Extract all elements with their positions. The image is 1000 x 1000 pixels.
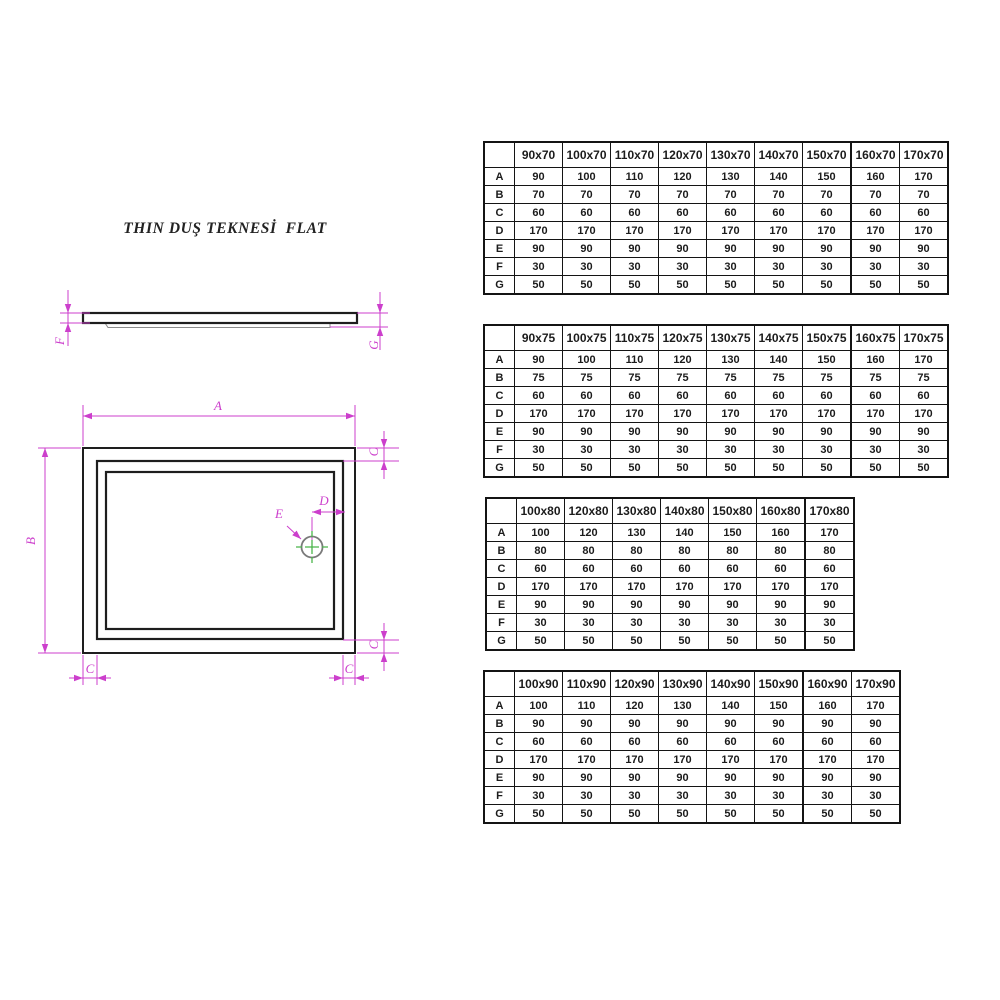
dimension-value: 140 [707, 697, 755, 715]
dimension-value: 90 [659, 423, 707, 441]
dimension-value: 170 [803, 751, 852, 769]
header-row: 100x80120x80130x80140x80150x80160x80170x… [486, 498, 854, 524]
table-row: D170170170170170170170 [486, 578, 854, 596]
dimension-value: 50 [517, 632, 565, 651]
table-row: G5050505050505050 [484, 805, 900, 824]
dimension-value: 90 [611, 769, 659, 787]
dimension-value: 170 [611, 405, 659, 423]
dimension-value: 30 [707, 787, 755, 805]
dimension-value: 170 [852, 751, 901, 769]
dimension-value: 60 [755, 733, 804, 751]
dimension-value: 75 [851, 369, 900, 387]
row-label: G [484, 805, 515, 824]
column-header: 160x90 [803, 671, 852, 697]
dimension-table: 100x80120x80130x80140x80150x80160x80170x… [485, 497, 855, 651]
table-row: B9090909090909090 [484, 715, 900, 733]
dimension-value: 90 [659, 240, 707, 258]
dimension-value: 90 [755, 423, 803, 441]
dimension-value: 170 [755, 751, 804, 769]
dimension-value: 90 [515, 769, 563, 787]
dimension-value: 90 [852, 769, 901, 787]
dimension-value: 30 [659, 258, 707, 276]
dim-label-c-bottom-left: C [82, 662, 98, 676]
column-header: 100x75 [563, 325, 611, 351]
dimension-value: 30 [611, 787, 659, 805]
dimension-value: 30 [803, 787, 852, 805]
column-header: 170x90 [852, 671, 901, 697]
column-header: 120x70 [659, 142, 707, 168]
dimension-value: 30 [709, 614, 757, 632]
dim-label-a: A [210, 399, 226, 413]
dimension-value: 50 [611, 805, 659, 824]
column-header: 120x80 [565, 498, 613, 524]
dimension-value: 90 [515, 715, 563, 733]
dimension-value: 60 [563, 733, 611, 751]
row-label: E [484, 769, 515, 787]
dimension-value: 150 [755, 697, 804, 715]
dimension-value: 60 [611, 387, 659, 405]
column-header: 100x90 [515, 671, 563, 697]
table-row: B707070707070707070 [484, 186, 948, 204]
shower-tray-spec-sheet: THIN DUŞ TEKNESİ FLAT [0, 0, 1000, 1000]
row-label: C [484, 204, 515, 222]
dimension-value: 50 [611, 276, 659, 295]
dimension-value: 75 [755, 369, 803, 387]
table-row: G505050505050505050 [484, 459, 948, 478]
dimension-value: 30 [659, 787, 707, 805]
dimension-value: 80 [709, 542, 757, 560]
dimension-value: 50 [661, 632, 709, 651]
side-view-canvas [40, 270, 400, 370]
table-row: C6060606060606060 [484, 733, 900, 751]
dimension-value: 60 [515, 387, 563, 405]
dimension-value: 60 [707, 204, 755, 222]
dimension-value: 90 [659, 715, 707, 733]
dimension-value: 60 [803, 733, 852, 751]
dim-label-e: E [271, 507, 287, 521]
dimension-value: 60 [659, 387, 707, 405]
dimension-value: 90 [563, 715, 611, 733]
dimension-value: 50 [659, 459, 707, 478]
row-label: E [484, 423, 515, 441]
dimension-value: 60 [659, 733, 707, 751]
column-header: 150x80 [709, 498, 757, 524]
dimension-value: 30 [563, 258, 611, 276]
dimension-value: 50 [611, 459, 659, 478]
table-row: E90909090909090 [486, 596, 854, 614]
dimension-value: 30 [661, 614, 709, 632]
dimension-value: 130 [707, 168, 755, 186]
table-row: C60606060606060 [486, 560, 854, 578]
row-label: A [484, 697, 515, 715]
dimension-value: 160 [851, 168, 900, 186]
dimension-value: 90 [707, 715, 755, 733]
dimension-value: 170 [563, 751, 611, 769]
dimension-value: 120 [565, 524, 613, 542]
dimension-value: 170 [563, 405, 611, 423]
size-table-x75: 90x75100x75110x75120x75130x75140x75150x7… [483, 324, 949, 478]
dimension-value: 170 [803, 222, 852, 240]
dimension-value: 30 [563, 787, 611, 805]
dimension-value: 70 [515, 186, 563, 204]
dimension-value: 70 [851, 186, 900, 204]
dim-label-b: B [24, 533, 38, 549]
dimension-value: 70 [563, 186, 611, 204]
column-header: 120x90 [611, 671, 659, 697]
row-label: D [486, 578, 517, 596]
column-header: 140x75 [755, 325, 803, 351]
dimension-table: 90x75100x75110x75120x75130x75140x75150x7… [483, 324, 949, 478]
dimension-value: 60 [565, 560, 613, 578]
dimension-value: 90 [563, 240, 611, 258]
dimension-value: 30 [611, 441, 659, 459]
dimension-value: 130 [613, 524, 661, 542]
dimension-value: 30 [757, 614, 806, 632]
dimension-value: 70 [755, 186, 803, 204]
dimension-value: 90 [515, 168, 563, 186]
dimension-value: 50 [707, 276, 755, 295]
dimension-value: 30 [563, 441, 611, 459]
column-header: 160x80 [757, 498, 806, 524]
dimension-value: 60 [563, 387, 611, 405]
row-label: A [484, 168, 515, 186]
size-table-x70: 90x70100x70110x70120x70130x70140x70150x7… [483, 141, 949, 295]
dimension-value: 170 [517, 578, 565, 596]
dimension-value: 30 [659, 441, 707, 459]
dimension-value: 30 [515, 258, 563, 276]
dim-label-c-top-right-vertical: C [367, 444, 381, 460]
row-label: D [484, 222, 515, 240]
dimension-value: 170 [565, 578, 613, 596]
dimension-value: 75 [900, 369, 949, 387]
row-label: G [484, 276, 515, 295]
column-header: 140x90 [707, 671, 755, 697]
column-header: 170x75 [900, 325, 949, 351]
column-header: 110x70 [611, 142, 659, 168]
dimension-value: 90 [755, 715, 804, 733]
tray-outer-edge [83, 448, 355, 653]
dimension-value: 50 [755, 459, 803, 478]
dimension-value: 30 [803, 441, 852, 459]
dimension-value: 60 [661, 560, 709, 578]
row-label: D [484, 405, 515, 423]
dimension-value: 50 [515, 805, 563, 824]
dimension-value: 50 [613, 632, 661, 651]
dimension-value: 120 [659, 168, 707, 186]
dimension-value: 160 [851, 351, 900, 369]
dimension-value: 30 [515, 787, 563, 805]
row-label: F [484, 441, 515, 459]
dimension-value: 170 [515, 405, 563, 423]
dimension-value: 60 [755, 387, 803, 405]
dimension-value: 30 [565, 614, 613, 632]
dimension-table: 100x90110x90120x90130x90140x90150x90160x… [483, 670, 901, 824]
page-title: THIN DUŞ TEKNESİ FLAT [100, 220, 350, 238]
row-label: A [486, 524, 517, 542]
dimension-value: 90 [755, 769, 804, 787]
row-label: B [484, 369, 515, 387]
dimension-value: 60 [900, 204, 949, 222]
dimension-value: 30 [755, 258, 803, 276]
dimension-value: 170 [611, 222, 659, 240]
column-header: 120x75 [659, 325, 707, 351]
dim-label-g: G [367, 337, 381, 353]
dimension-value: 50 [563, 459, 611, 478]
column-header: 130x80 [613, 498, 661, 524]
dimension-value: 30 [851, 258, 900, 276]
dimension-value: 150 [709, 524, 757, 542]
dim-label-c-bottom-right: C [341, 662, 357, 676]
dimension-value: 90 [611, 240, 659, 258]
header-row: 90x75100x75110x75120x75130x75140x75150x7… [484, 325, 948, 351]
dimension-value: 90 [515, 423, 563, 441]
dimension-value: 170 [755, 405, 803, 423]
tray-profile [83, 313, 357, 323]
dimension-value: 80 [565, 542, 613, 560]
column-header: 130x75 [707, 325, 755, 351]
dimension-value: 50 [707, 805, 755, 824]
dimension-value: 30 [707, 258, 755, 276]
side-view-drawing: F G [40, 270, 400, 370]
dimension-value: 50 [515, 459, 563, 478]
dimension-value: 170 [805, 578, 854, 596]
row-label: G [484, 459, 515, 478]
row-label: C [484, 387, 515, 405]
top-view-drawing: A B C C C C D E [25, 395, 410, 695]
row-label: G [486, 632, 517, 651]
dimension-value: 60 [613, 560, 661, 578]
dimension-value: 170 [515, 751, 563, 769]
dim-label-d: D [316, 494, 332, 508]
dimension-value: 30 [707, 441, 755, 459]
dimension-value: 30 [611, 258, 659, 276]
dimension-value: 90 [659, 769, 707, 787]
dim-label-c-bottom-right-vertical: C [367, 637, 381, 653]
top-view-canvas [25, 395, 410, 695]
table-row: C606060606060606060 [484, 387, 948, 405]
dimension-value: 60 [515, 204, 563, 222]
dimension-value: 50 [851, 276, 900, 295]
dimension-value: 110 [611, 351, 659, 369]
table-row: A100120130140150160170 [486, 524, 854, 542]
dimension-value: 170 [613, 578, 661, 596]
dimension-value: 75 [803, 369, 852, 387]
dimension-value: 90 [613, 596, 661, 614]
column-header: 100x70 [563, 142, 611, 168]
dimension-value: 50 [755, 276, 803, 295]
column-header: 160x70 [851, 142, 900, 168]
table-row: F3030303030303030 [484, 787, 900, 805]
row-label: B [484, 186, 515, 204]
dimension-value: 90 [563, 423, 611, 441]
column-header: 170x80 [805, 498, 854, 524]
column-header: 150x70 [803, 142, 852, 168]
dimension-value: 170 [900, 351, 949, 369]
dimension-value: 60 [707, 387, 755, 405]
row-label: E [484, 240, 515, 258]
dimension-value: 50 [803, 805, 852, 824]
dimension-value: 50 [900, 459, 949, 478]
column-header: 130x90 [659, 671, 707, 697]
dimension-value: 75 [707, 369, 755, 387]
row-label: F [484, 258, 515, 276]
dimension-value: 120 [611, 697, 659, 715]
table-row: G50505050505050 [486, 632, 854, 651]
dimension-value: 60 [707, 733, 755, 751]
dimension-value: 90 [611, 423, 659, 441]
dimension-value: 90 [707, 423, 755, 441]
table-row: A100110120130140150160170 [484, 697, 900, 715]
dimension-value: 60 [755, 204, 803, 222]
dimension-value: 80 [613, 542, 661, 560]
dimension-value: 140 [755, 168, 803, 186]
dimension-value: 90 [515, 240, 563, 258]
dimension-value: 80 [757, 542, 806, 560]
dimension-value: 30 [515, 441, 563, 459]
dimension-value: 75 [515, 369, 563, 387]
dimension-value: 150 [803, 168, 852, 186]
dimension-value: 30 [900, 441, 949, 459]
dimension-value: 50 [755, 805, 804, 824]
dimension-value: 50 [707, 459, 755, 478]
table-row: A90100110120130140150160170 [484, 351, 948, 369]
dimension-value: 90 [852, 715, 901, 733]
dimension-value: 60 [515, 733, 563, 751]
dimension-value: 30 [613, 614, 661, 632]
table-corner-cell [484, 142, 515, 168]
dimension-value: 170 [707, 405, 755, 423]
dimension-value: 90 [515, 351, 563, 369]
dimension-value: 30 [755, 787, 804, 805]
dimension-value: 170 [659, 222, 707, 240]
row-label: A [484, 351, 515, 369]
dimension-value: 50 [757, 632, 806, 651]
table-row: E909090909090909090 [484, 423, 948, 441]
dimension-value: 170 [900, 222, 949, 240]
row-label: C [484, 733, 515, 751]
dimension-value: 60 [709, 560, 757, 578]
column-header: 90x70 [515, 142, 563, 168]
dimension-value: 60 [803, 204, 852, 222]
dimension-value: 50 [851, 459, 900, 478]
dimension-value: 70 [707, 186, 755, 204]
dimension-value: 90 [803, 423, 852, 441]
dimension-value: 75 [611, 369, 659, 387]
dimension-value: 70 [900, 186, 949, 204]
row-label: F [486, 614, 517, 632]
dim-label-f: F [53, 333, 67, 349]
dimension-value: 70 [803, 186, 852, 204]
dimension-value: 90 [803, 769, 852, 787]
column-header: 150x75 [803, 325, 852, 351]
dimension-value: 60 [851, 204, 900, 222]
dimension-value: 170 [900, 168, 949, 186]
dimension-value: 60 [851, 387, 900, 405]
dimension-value: 130 [659, 697, 707, 715]
table-row: C606060606060606060 [484, 204, 948, 222]
dimension-value: 60 [852, 733, 901, 751]
dimension-value: 140 [755, 351, 803, 369]
header-row: 90x70100x70110x70120x70130x70140x70150x7… [484, 142, 948, 168]
dimension-value: 170 [851, 222, 900, 240]
dimension-table: 90x70100x70110x70120x70130x70140x70150x7… [483, 141, 949, 295]
dimension-value: 110 [563, 697, 611, 715]
dimension-value: 170 [805, 524, 854, 542]
dimension-value: 50 [563, 805, 611, 824]
row-label: B [484, 715, 515, 733]
column-header: 140x70 [755, 142, 803, 168]
dimension-value: 60 [563, 204, 611, 222]
dimension-value: 90 [851, 240, 900, 258]
dimension-value: 170 [515, 222, 563, 240]
dimension-value: 150 [803, 351, 852, 369]
table-row: F303030303030303030 [484, 441, 948, 459]
row-label: E [486, 596, 517, 614]
row-label: B [486, 542, 517, 560]
dimension-value: 50 [563, 276, 611, 295]
dimension-value: 60 [517, 560, 565, 578]
header-row: 100x90110x90120x90130x90140x90150x90160x… [484, 671, 900, 697]
dimension-value: 60 [803, 387, 852, 405]
table-row: G505050505050505050 [484, 276, 948, 295]
dimension-value: 170 [755, 222, 803, 240]
dimension-value: 90 [563, 769, 611, 787]
row-label: F [484, 787, 515, 805]
dimension-value: 160 [803, 697, 852, 715]
row-label: D [484, 751, 515, 769]
column-header: 140x80 [661, 498, 709, 524]
column-header: 170x70 [900, 142, 949, 168]
column-header: 110x75 [611, 325, 659, 351]
dimension-value: 170 [563, 222, 611, 240]
dimension-value: 170 [757, 578, 806, 596]
table-row: D170170170170170170170170170 [484, 222, 948, 240]
dimension-value: 170 [707, 222, 755, 240]
dimension-value: 30 [852, 787, 901, 805]
dimension-value: 30 [755, 441, 803, 459]
dimension-value: 90 [805, 596, 854, 614]
dimension-value: 170 [900, 405, 949, 423]
dimension-value: 100 [563, 351, 611, 369]
dimension-value: 170 [707, 751, 755, 769]
dimension-value: 90 [611, 715, 659, 733]
dimension-value: 75 [659, 369, 707, 387]
table-row: E909090909090909090 [484, 240, 948, 258]
dimension-value: 50 [515, 276, 563, 295]
dimension-value: 170 [852, 697, 901, 715]
dimension-value: 60 [900, 387, 949, 405]
dimension-value: 60 [757, 560, 806, 578]
dimension-value: 90 [755, 240, 803, 258]
dimension-value: 120 [659, 351, 707, 369]
table-row: D170170170170170170170170 [484, 751, 900, 769]
dimension-value: 90 [565, 596, 613, 614]
column-header: 130x70 [707, 142, 755, 168]
dimension-value: 30 [517, 614, 565, 632]
dimension-value: 90 [709, 596, 757, 614]
dimension-value: 90 [803, 240, 852, 258]
dimension-value: 170 [661, 578, 709, 596]
dimension-value: 90 [707, 769, 755, 787]
table-row: E9090909090909090 [484, 769, 900, 787]
dimension-value: 50 [709, 632, 757, 651]
dimension-value: 30 [851, 441, 900, 459]
dimension-value: 60 [805, 560, 854, 578]
dimension-value: 70 [659, 186, 707, 204]
dimension-value: 90 [900, 423, 949, 441]
dimension-value: 60 [611, 204, 659, 222]
dimension-value: 50 [852, 805, 901, 824]
